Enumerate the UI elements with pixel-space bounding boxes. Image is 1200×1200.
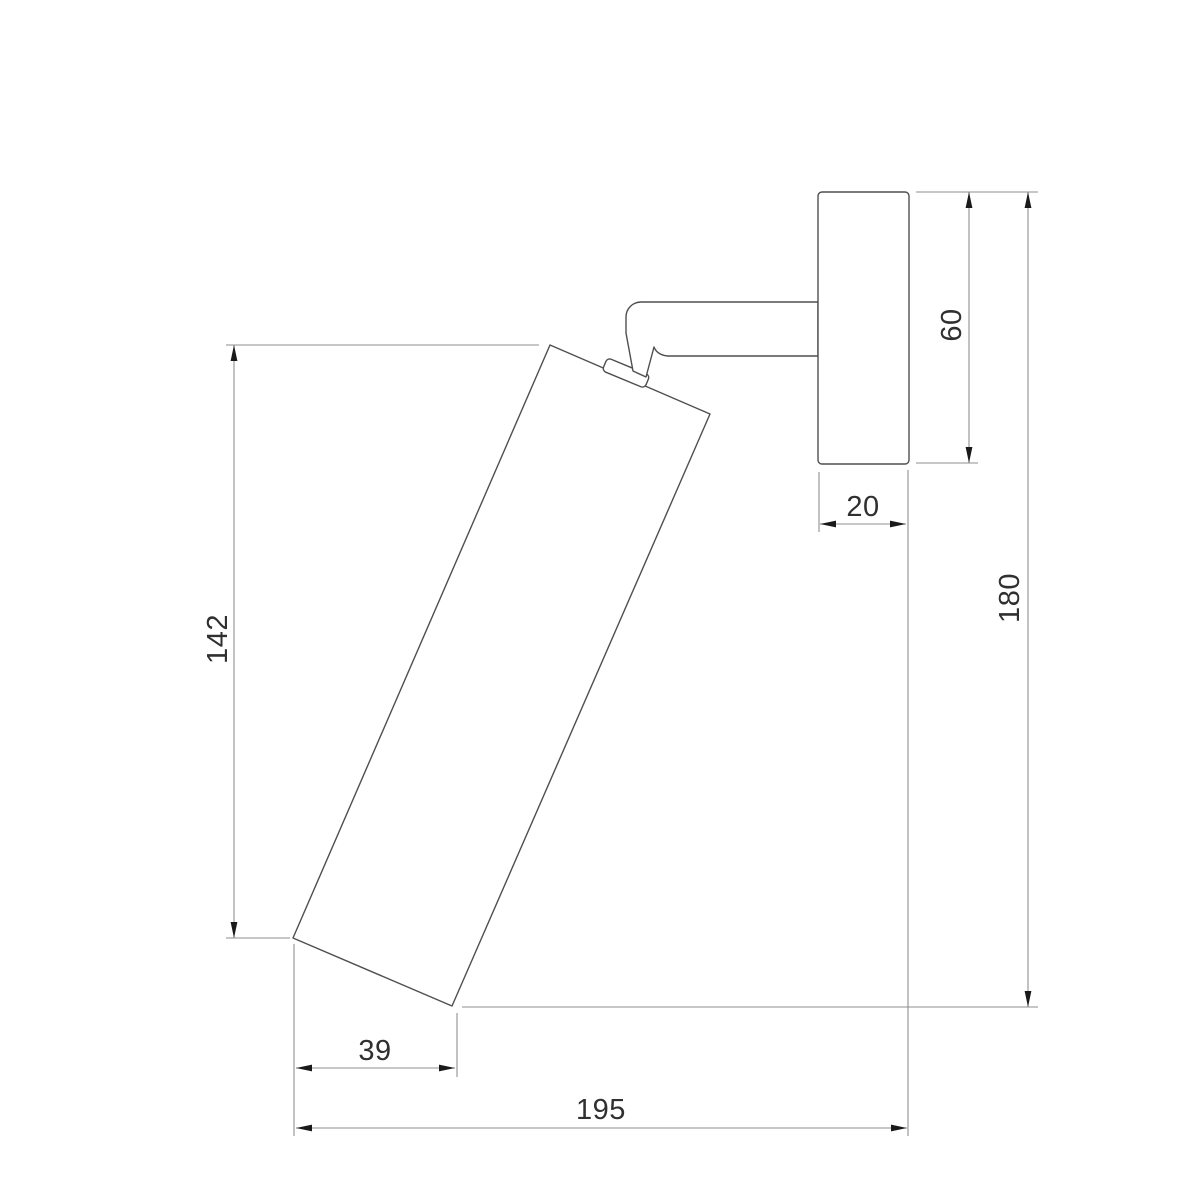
arrowhead-39-left-icon [296,1065,312,1072]
lamp-body [293,345,710,1006]
dim-label-60: 60 [936,308,968,341]
dimension-20: 20 [820,491,906,527]
arrowhead-142-top-icon [231,345,238,361]
dimension-195: 195 [296,1094,907,1131]
dim-label-39: 39 [358,1035,391,1067]
arrowhead-60-top-icon [966,192,973,208]
dimension-drawing-svg: 142 39 195 20 60 [0,0,1200,1200]
arrowhead-142-bottom-icon [231,922,238,938]
arrowhead-195-left-icon [296,1125,312,1132]
dim-label-142: 142 [202,614,234,664]
wall-plate [818,192,909,464]
technical-drawing-canvas: 142 39 195 20 60 [0,0,1200,1200]
spotlight-object [293,192,909,1006]
arrowhead-39-right-icon [439,1065,455,1072]
arrowhead-60-bottom-icon [966,447,973,463]
arrowhead-180-top-icon [1025,192,1032,208]
dim-label-180: 180 [994,573,1026,623]
dim-label-20: 20 [846,491,879,523]
dimension-60: 60 [936,192,972,463]
dimension-142: 142 [202,345,237,938]
dimension-39: 39 [296,1035,455,1071]
dimension-180: 180 [994,192,1031,1007]
arrowhead-20-right-icon [890,521,906,528]
arrowhead-195-right-icon [891,1125,907,1132]
arrowhead-180-bottom-icon [1025,991,1032,1007]
arrowhead-20-left-icon [820,521,836,528]
mounting-arm [626,302,818,377]
dim-label-195: 195 [576,1094,626,1126]
